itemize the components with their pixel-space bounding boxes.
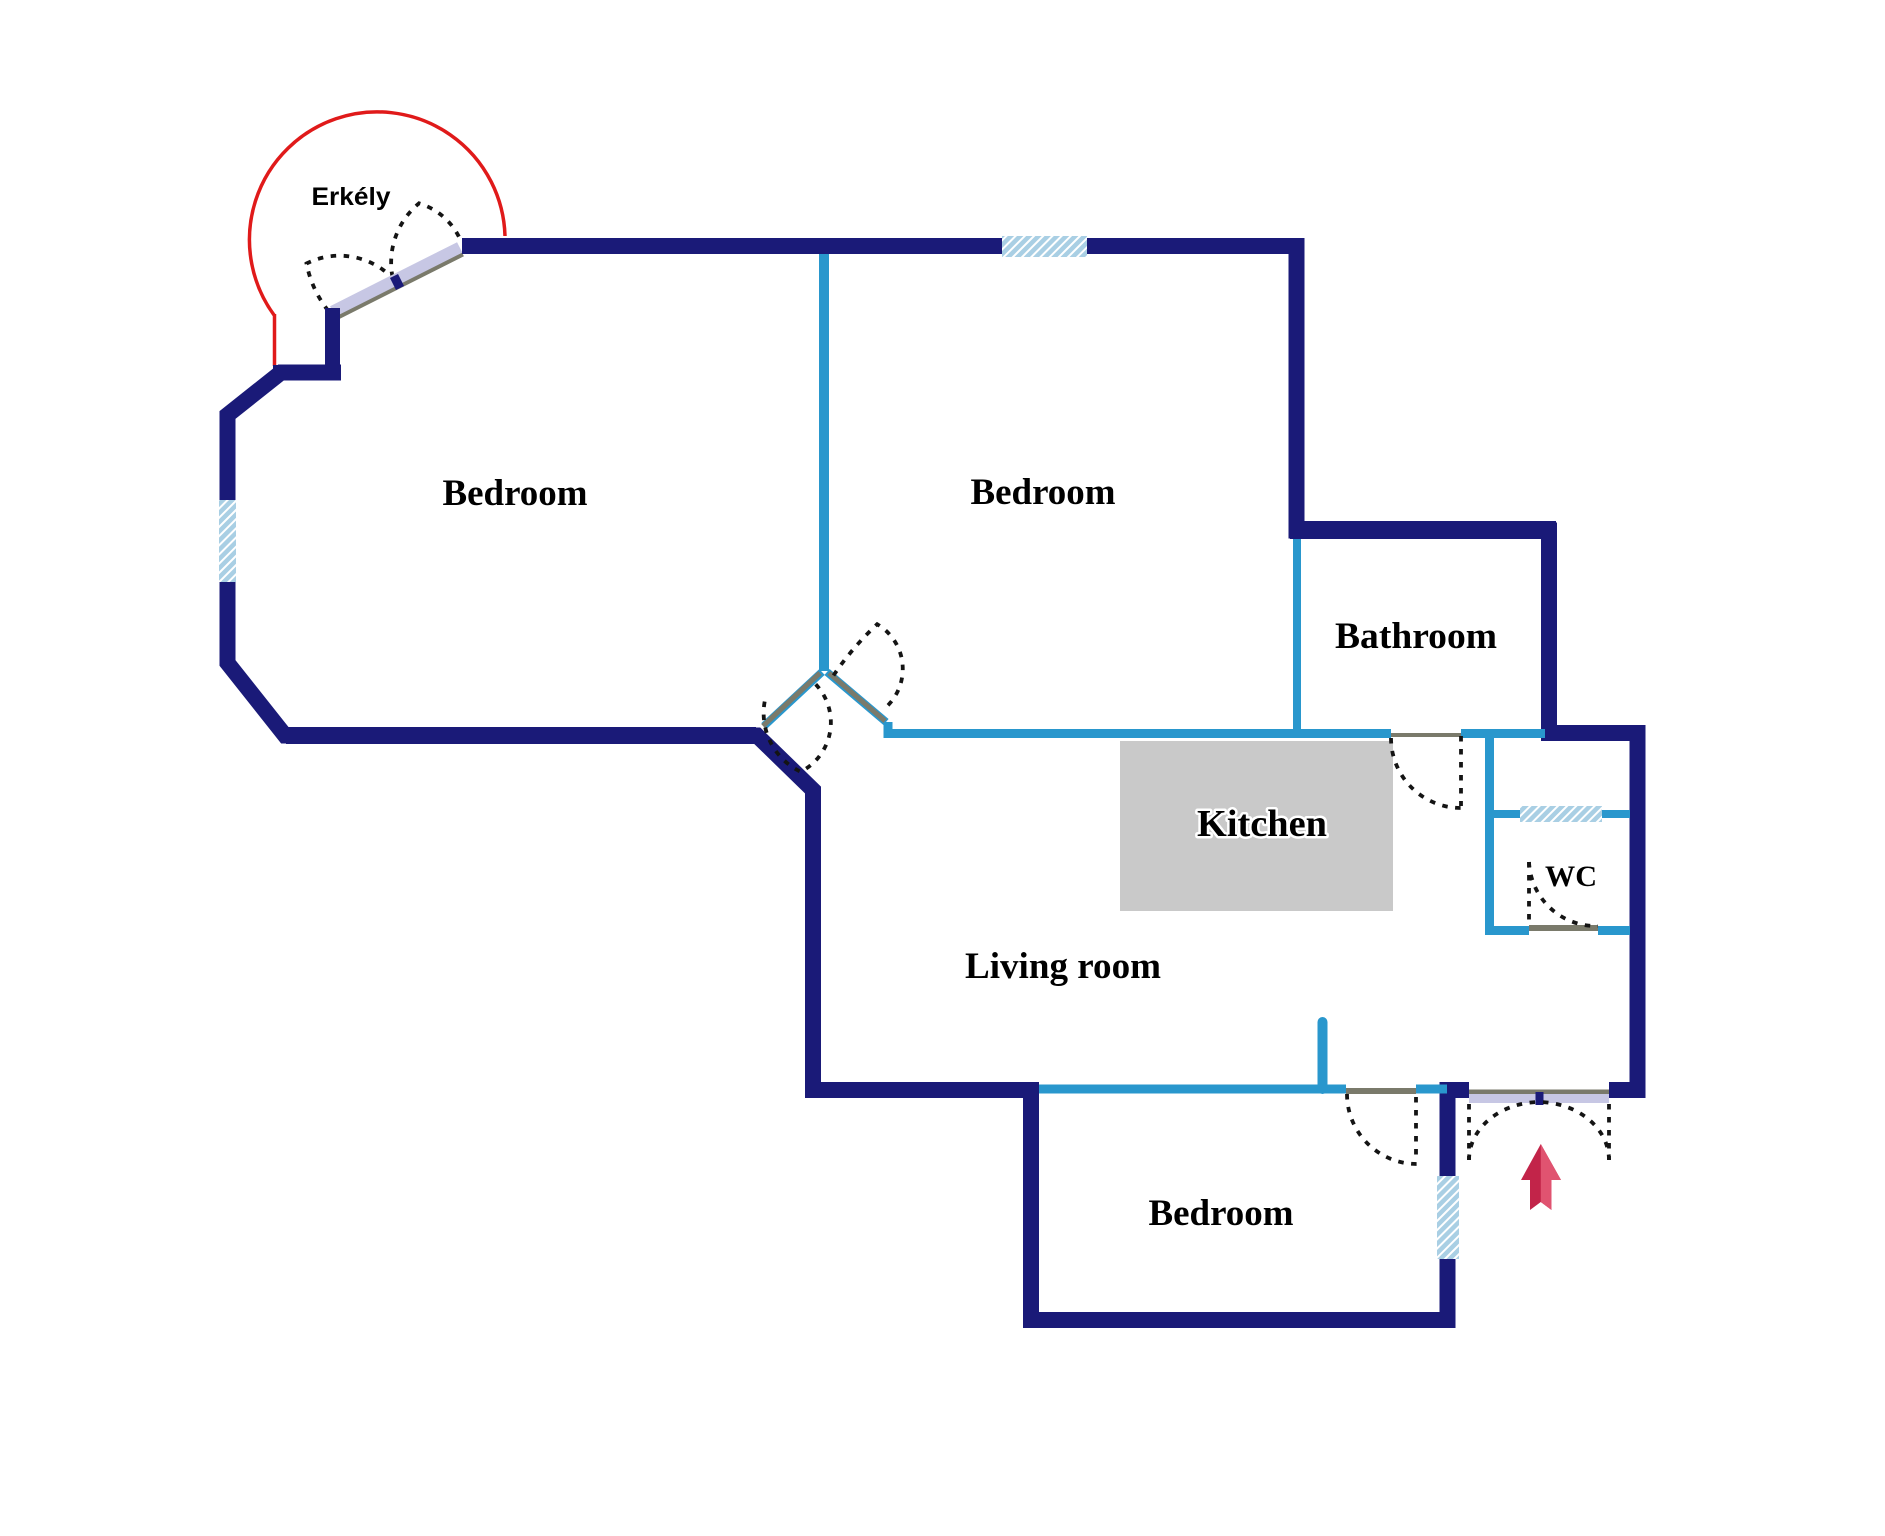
svg-text:Kitchen: Kitchen [1197,803,1327,845]
svg-text:Erkély: Erkély [312,183,391,211]
svg-text:Living room: Living room [965,946,1161,987]
svg-text:WC: WC [1545,860,1597,893]
svg-text:Bathroom: Bathroom [1335,616,1497,657]
svg-text:Bedroom: Bedroom [1149,1193,1294,1234]
svg-text:Bedroom: Bedroom [443,473,588,514]
svg-text:Bedroom: Bedroom [971,472,1116,513]
